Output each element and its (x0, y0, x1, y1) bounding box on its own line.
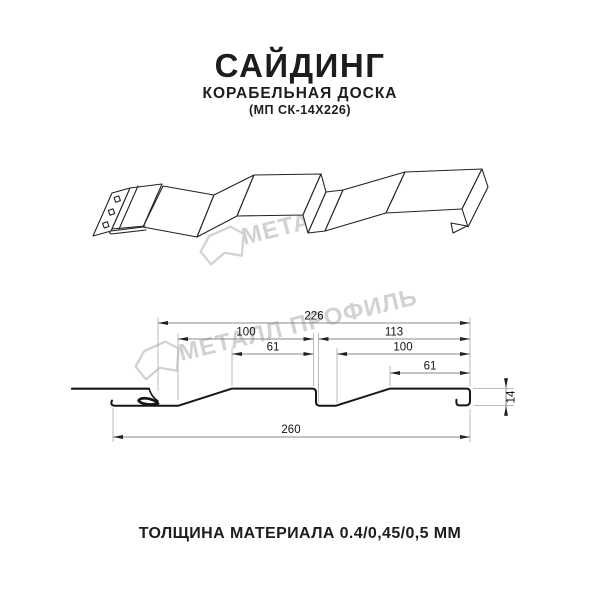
dim-overall-top: 226 (304, 311, 323, 323)
brand-watermark-lower: МЕТАЛЛ ПРОФИЛЬ (132, 283, 421, 381)
dim-plateau-right: 61 (424, 361, 437, 373)
dimension-lines (113, 323, 506, 437)
dim-overall-bottom: 260 (281, 424, 300, 436)
dim-board-right-inner: 100 (393, 342, 412, 354)
dim-board-right: 113 (385, 327, 403, 339)
dim-board-left: 100 (236, 327, 255, 339)
section-profile-outline (72, 389, 470, 406)
product-drawing-page: САЙДИНГ КОРАБЕЛЬНАЯ ДОСКА (МП СК-14Х226)… (0, 0, 600, 600)
extension-lines (113, 317, 514, 442)
dim-plateau-left: 61 (267, 342, 280, 354)
technical-drawing: МЕТАЛЛ ПРОФИЛЬ МЕТАЛЛ ПРОФИЛЬ (0, 0, 600, 600)
dim-profile-height: 14 (506, 390, 518, 403)
thickness-note: ТОЛЩИНА МАТЕРИАЛА 0.4/0,45/0,5 ММ (0, 525, 600, 543)
